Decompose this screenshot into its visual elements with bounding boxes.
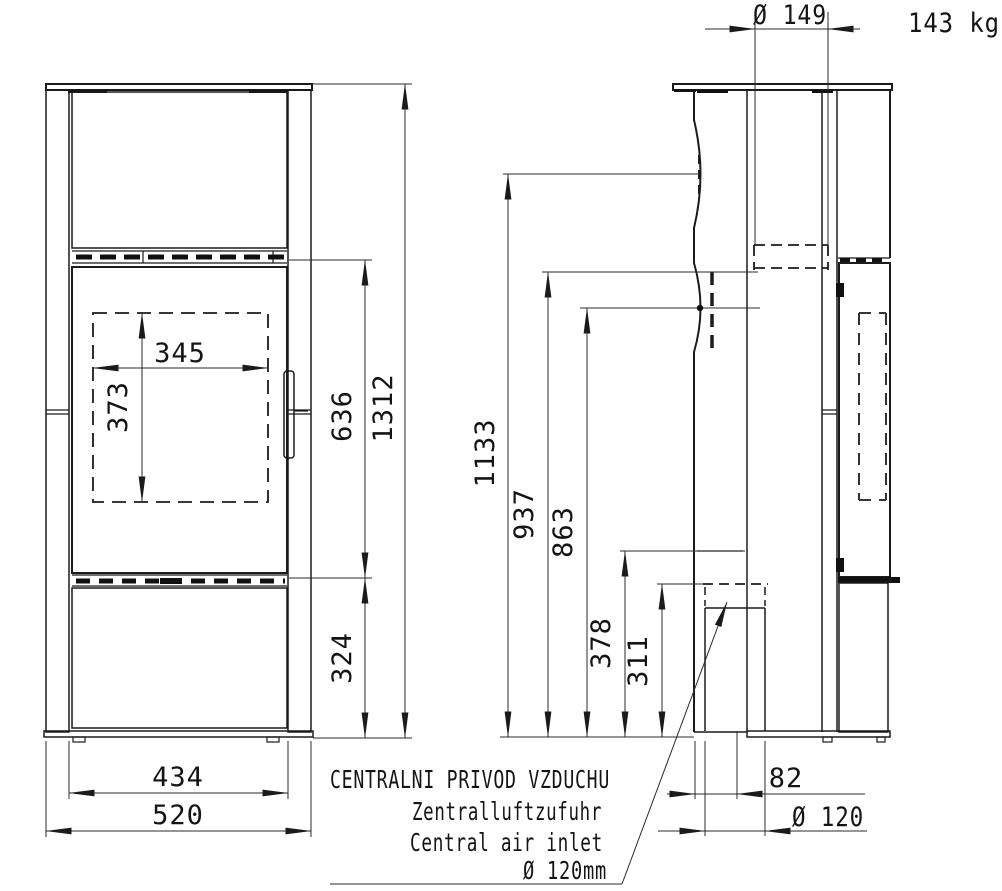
front-upper-panel bbox=[72, 92, 287, 248]
dim-label-inlet-offset: 82 bbox=[769, 763, 804, 794]
flue-extension-lines bbox=[755, 12, 828, 246]
side-dimensions: Ø 149 143 kg 1133 937 863 378 311 82 Ø 1… bbox=[470, 0, 1000, 836]
door-hinge-bottom bbox=[836, 558, 844, 572]
note-line-english: Central air inlet bbox=[410, 828, 603, 857]
side-plate-shadow-left bbox=[697, 90, 728, 93]
dim-label-311: 311 bbox=[623, 635, 654, 687]
door-hinge-top bbox=[836, 283, 844, 297]
note-line-diameter: Ø 120mm bbox=[523, 856, 607, 885]
dim-label-body-width: 434 bbox=[152, 762, 204, 793]
front-bottom-grille bbox=[72, 575, 287, 586]
dim-label-plinth: 324 bbox=[327, 632, 358, 684]
side-door-panel bbox=[839, 263, 890, 577]
side-extension-lines bbox=[503, 174, 760, 584]
dim-label-flue-diameter: Ø 149 bbox=[753, 0, 827, 31]
side-door-ledge bbox=[838, 577, 900, 583]
dim-label-glass-width: 345 bbox=[154, 338, 206, 369]
column-joint-lines bbox=[46, 410, 311, 414]
note-line-czech: CENTRALNI PRIVOD VZDUCHU bbox=[330, 765, 610, 794]
front-lower-panel bbox=[72, 588, 287, 728]
technical-drawing-page: 345 373 636 324 1312 434 520 Ø 149 143 k… bbox=[0, 0, 1002, 891]
front-top-grille bbox=[72, 251, 287, 263]
dim-label-door-zone: 636 bbox=[327, 390, 358, 442]
front-dimensions: 345 373 636 324 1312 434 520 bbox=[46, 84, 412, 837]
dim-label-inlet-diameter: Ø 120 bbox=[792, 802, 864, 833]
note-line-german: Zentralluftzufuhr bbox=[412, 797, 602, 826]
air-inlet-note: CENTRALNI PRIVOD VZDUCHU Zentralluftzufu… bbox=[330, 602, 727, 885]
measure-point-dot bbox=[697, 305, 703, 311]
inlet-extension-lines bbox=[695, 731, 765, 836]
front-view bbox=[44, 84, 313, 742]
dim-label-1133: 1133 bbox=[470, 418, 501, 487]
side-view bbox=[673, 84, 900, 742]
dim-label-863: 863 bbox=[548, 506, 579, 558]
dim-label-overall-width: 520 bbox=[152, 800, 204, 831]
dim-label-378: 378 bbox=[586, 617, 617, 669]
dim-label-glass-height: 373 bbox=[103, 381, 134, 433]
side-door-glass-dashed bbox=[859, 313, 886, 500]
front-base-plate bbox=[44, 731, 313, 737]
front-top-plate bbox=[46, 84, 312, 90]
front-left-column bbox=[46, 90, 69, 732]
flue-collar-hidden bbox=[754, 245, 828, 270]
weight-label: 143 kg bbox=[908, 8, 1000, 39]
side-column-joint bbox=[822, 410, 837, 414]
dim-label-overall-height: 1312 bbox=[368, 373, 399, 442]
side-top-plate bbox=[673, 84, 892, 90]
air-inlet-pipe bbox=[703, 584, 768, 731]
stove-dimension-drawing: 345 373 636 324 1312 434 520 Ø 149 143 k… bbox=[0, 0, 1002, 891]
dim-label-937: 937 bbox=[509, 488, 540, 540]
side-plate-lip bbox=[674, 89, 696, 92]
side-lower-front-panel bbox=[839, 583, 888, 732]
